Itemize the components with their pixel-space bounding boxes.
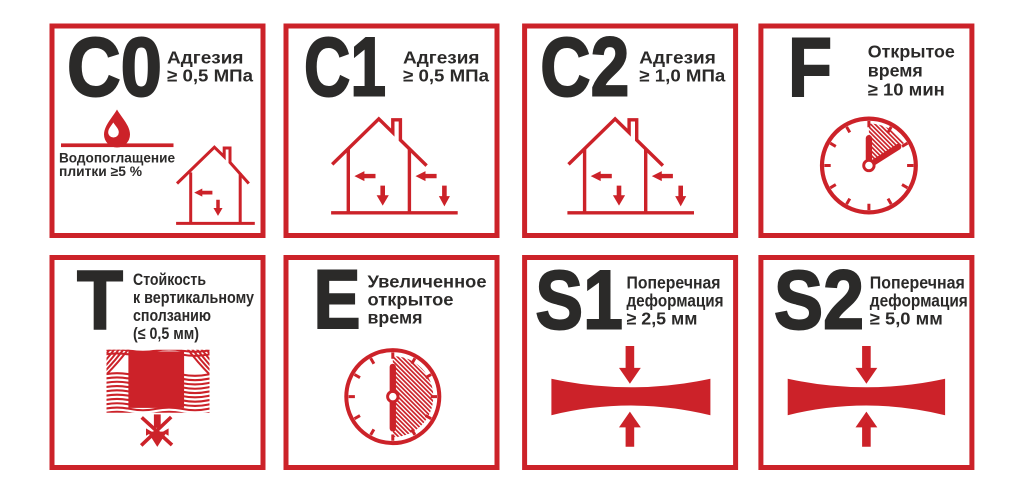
svg-text:деформация: деформация <box>627 291 724 311</box>
svg-text:≥ 2,5 мм: ≥ 2,5 мм <box>627 309 698 329</box>
svg-text:к вертикальному: к вертикальному <box>133 289 255 307</box>
svg-text:Стойкость: Стойкость <box>133 271 206 289</box>
svg-text:сползанию: сползанию <box>133 307 211 325</box>
svg-text:≥ 0,5 МПа: ≥ 0,5 МПа <box>167 66 253 86</box>
svg-text:деформация: деформация <box>870 291 968 311</box>
svg-text:Адгезия: Адгезия <box>403 48 480 68</box>
svg-text:C2: C2 <box>540 20 629 114</box>
svg-text:≥ 1,0 МПа: ≥ 1,0 МПа <box>639 66 725 86</box>
svg-text:открытое: открытое <box>368 290 454 310</box>
svg-text:плитки ≥5 %: плитки ≥5 % <box>59 164 142 179</box>
svg-text:время: время <box>368 308 423 328</box>
svg-text:Поперечная: Поперечная <box>627 273 721 293</box>
svg-text:Адгезия: Адгезия <box>167 48 244 68</box>
svg-text:Открытое: Открытое <box>868 42 955 62</box>
svg-text:время: время <box>868 61 923 81</box>
svg-text:S1: S1 <box>535 252 623 346</box>
svg-text:(≤ 0,5 мм): (≤ 0,5 мм) <box>133 325 199 343</box>
svg-text:F: F <box>788 20 832 114</box>
svg-text:Адгезия: Адгезия <box>639 48 716 68</box>
svg-text:C0: C0 <box>67 20 162 114</box>
svg-text:C1: C1 <box>304 20 386 114</box>
svg-text:≥ 5,0 мм: ≥ 5,0 мм <box>870 309 943 329</box>
svg-text:S2: S2 <box>774 252 864 346</box>
svg-text:≥ 10 мин: ≥ 10 мин <box>868 80 945 100</box>
svg-text:T: T <box>77 252 123 346</box>
svg-text:E: E <box>314 252 361 346</box>
svg-text:Увеличенное: Увеличенное <box>368 272 487 292</box>
svg-text:≥ 0,5 МПа: ≥ 0,5 МПа <box>403 66 489 86</box>
svg-text:Поперечная: Поперечная <box>870 273 965 293</box>
